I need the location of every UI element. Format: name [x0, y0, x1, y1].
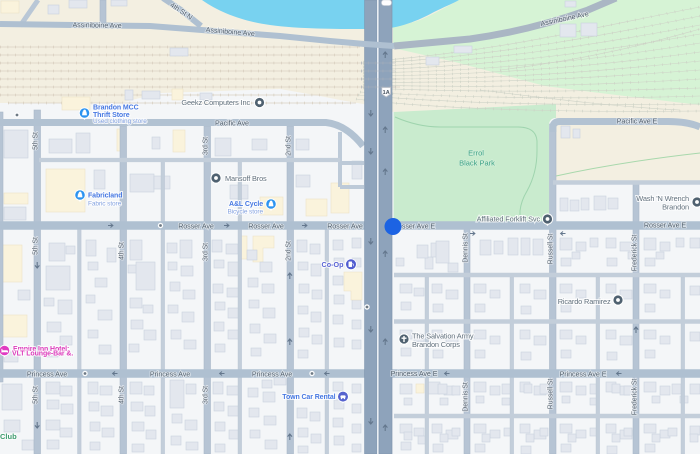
svg-text:Brandon MCC: Brandon MCC — [93, 105, 139, 112]
svg-text:Club: Club — [0, 432, 17, 441]
svg-text:Princess Ave: Princess Ave — [27, 370, 67, 379]
svg-text:Princess Ave: Princess Ave — [150, 370, 190, 379]
svg-text:Ricardo Ramirez: Ricardo Ramirez — [558, 297, 611, 306]
svg-text:Rosser Ave E: Rosser Ave E — [644, 221, 687, 230]
svg-text:Princess Ave E: Princess Ave E — [560, 370, 607, 379]
svg-text:Russell St: Russell St — [548, 379, 555, 410]
svg-text:5th St: 5th St — [33, 132, 40, 150]
svg-text:2nd St: 2nd St — [286, 241, 293, 261]
svg-text:Rosser Ave: Rosser Ave — [248, 222, 284, 231]
svg-text:Used clothing store: Used clothing store — [93, 118, 147, 125]
svg-text:Russell St: Russell St — [548, 234, 555, 265]
svg-text:Pacific Ave: Pacific Ave — [215, 119, 249, 128]
svg-text:Geekz Computers Inc: Geekz Computers Inc — [181, 98, 250, 107]
svg-text:5th St: 5th St — [33, 237, 40, 255]
svg-text:Black Park: Black Park — [459, 159, 495, 168]
svg-text:Princess Ave E: Princess Ave E — [391, 369, 438, 378]
svg-text:Fabric store: Fabric store — [88, 201, 122, 208]
svg-text:4th St: 4th St — [119, 242, 126, 260]
svg-text:5th St: 5th St — [33, 386, 40, 404]
svg-text:3rd St: 3rd St — [203, 243, 210, 261]
svg-text:Mansoff Bros: Mansoff Bros — [225, 174, 267, 183]
svg-text:3rd St: 3rd St — [203, 386, 210, 404]
svg-text:Pacific Ave E: Pacific Ave E — [617, 117, 658, 126]
svg-text:Co-Op: Co-Op — [322, 260, 345, 269]
svg-text:Fabricland: Fabricland — [88, 193, 122, 200]
svg-text:Brandon: Brandon — [662, 203, 689, 212]
svg-text:Rosser Ave: Rosser Ave — [327, 222, 363, 231]
svg-text:Dennis St: Dennis St — [463, 233, 470, 263]
svg-text:Frederick St: Frederick St — [632, 235, 639, 272]
svg-text:VLT Lounge-Bar &.: VLT Lounge-Bar &. — [12, 351, 73, 358]
svg-text:Town Car Rental: Town Car Rental — [282, 394, 335, 401]
svg-text:Dennis St: Dennis St — [463, 382, 470, 412]
svg-text:Princess Ave: Princess Ave — [252, 370, 292, 379]
svg-text:3rd St: 3rd St — [203, 137, 210, 155]
svg-text:1A: 1A — [383, 90, 390, 96]
svg-text:Frederick St: Frederick St — [632, 379, 639, 416]
svg-text:4th St: 4th St — [119, 386, 126, 404]
svg-text:Errol: Errol — [468, 149, 484, 158]
svg-text:Affiliated Forklift Svc: Affiliated Forklift Svc — [477, 215, 541, 224]
svg-text:2nd St: 2nd St — [286, 136, 293, 156]
svg-text:Assiniboine Ave: Assiniboine Ave — [72, 20, 121, 30]
svg-text:Bicycle store: Bicycle store — [227, 209, 263, 216]
svg-text:Rosser Ave: Rosser Ave — [178, 222, 214, 231]
svg-text:A&L Cycle: A&L Cycle — [229, 201, 263, 208]
svg-text:Brandon Corps: Brandon Corps — [412, 340, 460, 349]
